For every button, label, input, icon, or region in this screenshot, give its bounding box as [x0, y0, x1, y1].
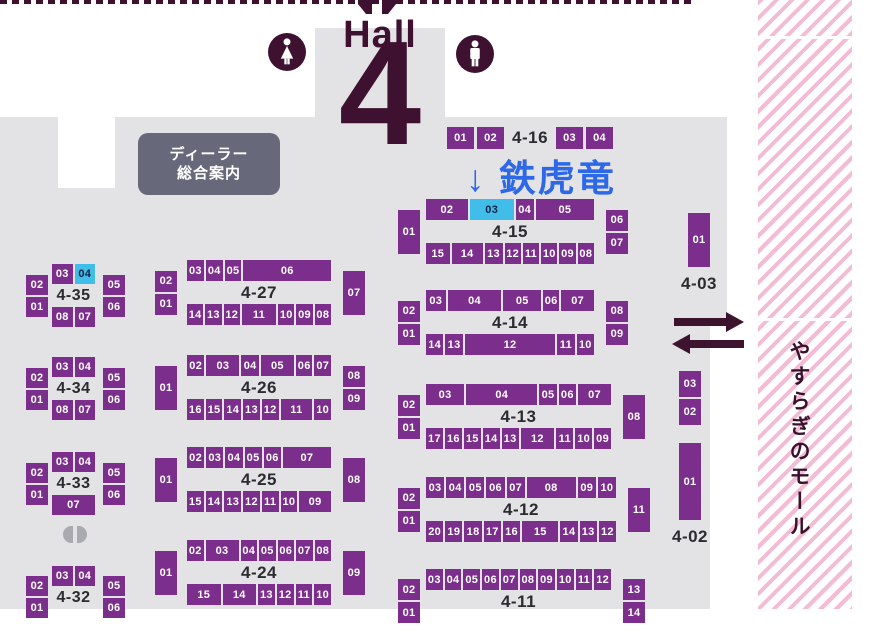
- booth-cell-4-24-11: 11: [296, 584, 313, 605]
- booth-cell-4-27-01: 01: [155, 294, 177, 315]
- booth-cell-4-27-13: 13: [205, 304, 221, 325]
- booth-cell-4-15-15: 15: [426, 243, 450, 264]
- booth-cell-4-12-18: 18: [464, 521, 481, 542]
- hall-number: 4: [315, 24, 445, 164]
- booth-cell-4-12-05: 05: [466, 477, 484, 498]
- booth-cell-4-13-05: 05: [539, 384, 556, 405]
- booth-block-4-26: 010203040506074-26161514131211100809: [155, 355, 365, 420]
- booth-cell-4-11-13: 13: [623, 579, 645, 600]
- booth-cell-4-12-10: 10: [598, 477, 616, 498]
- booth-block-4-34: 020103044-3408070506: [26, 357, 125, 420]
- booth-cell-4-15-02: 02: [426, 199, 468, 220]
- booth-cell-4-14-05: 05: [503, 290, 541, 311]
- booth-cell-4-26-12: 12: [262, 399, 279, 420]
- booth-cell-4-33-07: 07: [52, 495, 95, 515]
- block-label-4-13: 4-13: [426, 407, 611, 426]
- booth-cell-4-27-06: 06: [243, 260, 331, 281]
- booth-cell-4-13-01: 01: [398, 418, 420, 439]
- exhibitor-annotation: ↓ 鉄虎竜: [466, 148, 616, 202]
- booth-cell-4-02-01: 01: [679, 443, 701, 520]
- booth-cell-4-26-10: 10: [314, 399, 331, 420]
- booth-cell-4-14-02: 02: [398, 301, 420, 322]
- arrow-right-head-icon: [726, 312, 744, 332]
- booth-cell-4-27-08: 08: [315, 304, 331, 325]
- booth-cell-4-33-05: 05: [103, 463, 125, 483]
- booth-cell-4-15-05: 05: [536, 199, 594, 220]
- booth-cell-4-35-07: 07: [75, 307, 96, 327]
- booth-block-4-12: 020103040506070809104-122019181716151413…: [398, 477, 650, 542]
- dashed-wall-line: [0, 0, 692, 4]
- booth-block-4-15: 01020304054-1515141312111009080607: [398, 199, 628, 264]
- booth-cell-4-26-05: 05: [261, 355, 294, 376]
- booth-cell-4-25-06: 06: [264, 447, 281, 468]
- booth-cell-4-25-10: 10: [281, 491, 298, 512]
- booth-cell-4-13-09: 09: [594, 428, 611, 449]
- booth-cell-4-27-09: 09: [296, 304, 312, 325]
- booth-cell-4-12-14: 14: [560, 521, 577, 542]
- booth-cell-4-27-10: 10: [278, 304, 294, 325]
- booth-cell-4-32-01: 01: [26, 598, 48, 618]
- booth-cell-4-24-10: 10: [314, 584, 331, 605]
- booth-cell-4-14-06: 06: [543, 290, 559, 311]
- booth-cell-4-13-04: 04: [466, 384, 537, 405]
- booth-cell-4-25-02: 02: [187, 447, 204, 468]
- booth-cell-4-13-15: 15: [464, 428, 481, 449]
- booth-cell-4-16-02: 02: [477, 127, 504, 149]
- booth-cell-4-12-16: 16: [503, 521, 520, 542]
- booth-cell-4-02-02: 02: [679, 399, 701, 425]
- booth-cell-4-12-13: 13: [580, 521, 597, 542]
- booth-cell-4-13-06: 06: [559, 384, 576, 405]
- booth-cell-4-35-03: 03: [52, 264, 73, 284]
- booth-cell-4-14-11: 11: [557, 334, 574, 355]
- booth-cell-4-14-08: 08: [606, 301, 628, 322]
- booth-cell-4-11-01: 01: [398, 602, 420, 623]
- block-label-4-15: 4-15: [426, 222, 594, 241]
- booth-cell-4-34-05: 05: [103, 368, 125, 388]
- booth-cell-4-33-01: 01: [26, 485, 48, 505]
- booth-cell-4-32-02: 02: [26, 576, 48, 596]
- booth-cell-4-26-13: 13: [243, 399, 260, 420]
- booth-cell-4-26-04: 04: [241, 355, 258, 376]
- booth-cell-4-25-13: 13: [224, 491, 241, 512]
- booth-block-4-13: 020103040506074-1317161514131211100908: [398, 384, 645, 449]
- booth-block-4-24: 01020304050607084-2415141312111009: [155, 540, 365, 605]
- booth-cell-4-12-12: 12: [599, 521, 616, 542]
- booth-cell-4-26-15: 15: [206, 399, 223, 420]
- block-label-4-25: 4-25: [187, 470, 331, 489]
- booth-cell-4-26-07: 07: [314, 355, 331, 376]
- booth-cell-4-35-06: 06: [103, 297, 125, 317]
- booth-cell-4-12-08: 08: [527, 477, 576, 498]
- booth-cell-4-35-01: 01: [26, 297, 48, 317]
- stripe-separator-mid: [758, 318, 852, 321]
- booth-cell-4-24-05: 05: [259, 540, 276, 561]
- block-label-4-33: 4-33: [52, 474, 95, 493]
- booth-block-4-02: 0302014-02: [668, 371, 712, 546]
- booth-cell-4-26-03: 03: [206, 355, 239, 376]
- booth-cell-4-24-08: 08: [315, 540, 332, 561]
- booth-block-4-11: 0201030405060708091011124-111314: [398, 569, 645, 633]
- booth-cell-4-25-03: 03: [206, 447, 223, 468]
- mall-name-label: やすらぎのモール: [783, 340, 813, 540]
- booth-cell-4-11-12: 12: [594, 569, 611, 590]
- booth-block-4-32: 020103044-320506: [26, 566, 125, 628]
- booth-cell-4-35-05: 05: [103, 275, 125, 295]
- booth-cell-4-24-07: 07: [296, 540, 313, 561]
- booth-cell-4-13-11: 11: [556, 428, 573, 449]
- booth-cell-4-27-02: 02: [155, 271, 177, 292]
- booth-cell-4-13-13: 13: [502, 428, 519, 449]
- booth-cell-4-25-09: 09: [299, 491, 331, 512]
- booth-cell-4-25-04: 04: [225, 447, 242, 468]
- booth-block-4-03: 014-03: [676, 213, 722, 293]
- booth-cell-4-11-14: 14: [623, 602, 645, 623]
- booth-cell-4-14-07: 07: [561, 290, 594, 311]
- booth-cell-4-24-09: 09: [343, 551, 365, 595]
- booth-cell-4-14-03: 03: [426, 290, 446, 311]
- booth-cell-4-35-08: 08: [52, 307, 73, 327]
- booth-cell-4-14-14: 14: [426, 334, 443, 355]
- booth-cell-4-12-01: 01: [398, 511, 420, 532]
- booth-cell-4-24-02: 02: [187, 540, 204, 561]
- booth-cell-4-27-07: 07: [343, 271, 365, 315]
- block-label-4-35: 4-35: [52, 286, 95, 305]
- booth-cell-4-24-12: 12: [277, 584, 294, 605]
- booth-cell-4-24-14: 14: [223, 584, 257, 605]
- booth-cell-4-15-13: 13: [485, 243, 503, 264]
- booth-cell-4-12-09: 09: [578, 477, 596, 498]
- booth-cell-4-11-10: 10: [557, 569, 574, 590]
- booth-cell-4-26-14: 14: [224, 399, 241, 420]
- block-label-4-32: 4-32: [52, 588, 95, 607]
- booth-cell-4-15-07: 07: [606, 233, 628, 254]
- booth-cell-4-27-12: 12: [224, 304, 240, 325]
- block-label-4-03: 4-03: [681, 274, 717, 293]
- dealer-info-box: ディーラー 総合案内: [138, 133, 280, 195]
- booth-cell-4-24-04: 04: [241, 540, 258, 561]
- booth-cell-4-32-06: 06: [103, 598, 125, 618]
- booth-cell-4-34-07: 07: [75, 400, 96, 420]
- booth-cell-4-14-04: 04: [448, 290, 502, 311]
- booth-cell-4-11-07: 07: [501, 569, 518, 590]
- booth-cell-4-11-02: 02: [398, 579, 420, 600]
- booth-cell-4-11-05: 05: [463, 569, 480, 590]
- booth-cell-4-13-02: 02: [398, 395, 420, 416]
- booth-cell-4-15-01: 01: [398, 210, 420, 254]
- arrow-left-head-icon: [672, 334, 690, 354]
- booth-block-4-25: 010203040506074-251514131211100908: [155, 447, 365, 512]
- booth-cell-4-25-01: 01: [155, 458, 177, 502]
- booth-cell-4-26-08: 08: [343, 366, 365, 387]
- booth-cell-4-14-10: 10: [577, 334, 594, 355]
- block-label-4-14: 4-14: [426, 313, 594, 332]
- booth-cell-4-11-04: 04: [445, 569, 462, 590]
- booth-cell-4-14-12: 12: [465, 334, 555, 355]
- booth-cell-4-15-12: 12: [505, 243, 521, 264]
- block-label-4-16: 4-16: [507, 127, 553, 149]
- booth-cell-4-26-11: 11: [281, 399, 313, 420]
- arrow-left-icon: [690, 340, 744, 348]
- booth-cell-4-34-01: 01: [26, 390, 48, 410]
- booth-cell-4-13-10: 10: [575, 428, 592, 449]
- booth-cell-4-12-17: 17: [484, 521, 501, 542]
- entrance-notch: [58, 117, 115, 188]
- booth-cell-4-25-15: 15: [187, 491, 204, 512]
- booth-cell-4-02-03: 03: [679, 371, 701, 397]
- booth-cell-4-12-20: 20: [426, 521, 443, 542]
- booth-cell-4-33-06: 06: [103, 485, 125, 505]
- booth-cell-4-13-07: 07: [578, 384, 611, 405]
- male-restroom-icon: [456, 35, 494, 73]
- booth-cell-4-24-13: 13: [258, 584, 275, 605]
- booth-cell-4-35-04: 04: [75, 264, 96, 284]
- stripe-separator-top: [758, 36, 852, 39]
- booth-cell-4-25-11: 11: [262, 491, 279, 512]
- booth-cell-4-32-04: 04: [75, 566, 96, 586]
- booth-cell-4-15-08: 08: [578, 243, 594, 264]
- booth-cell-4-12-07: 07: [507, 477, 525, 498]
- booth-cell-4-34-06: 06: [103, 390, 125, 410]
- booth-block-4-16: 01024-160304: [447, 127, 613, 149]
- booth-cell-4-34-03: 03: [52, 357, 73, 377]
- booth-cell-4-12-06: 06: [486, 477, 504, 498]
- block-label-4-27: 4-27: [187, 283, 331, 302]
- booth-cell-4-33-04: 04: [75, 452, 96, 472]
- booth-cell-4-24-01: 01: [155, 551, 177, 595]
- dealer-info-line1: ディーラー: [170, 145, 249, 165]
- booth-cell-4-15-04: 04: [516, 199, 534, 220]
- booth-cell-4-15-11: 11: [523, 243, 539, 264]
- booth-cell-4-32-05: 05: [103, 576, 125, 596]
- booth-cell-4-25-07: 07: [283, 447, 331, 468]
- booth-block-4-14: 020103040506074-1414131211100809: [398, 290, 628, 355]
- booth-cell-4-11-06: 06: [482, 569, 499, 590]
- booth-cell-4-16-01: 01: [447, 127, 474, 149]
- booth-cell-4-26-01: 01: [155, 366, 177, 410]
- booth-cell-4-15-03: 03: [470, 199, 514, 220]
- booth-cell-4-14-09: 09: [606, 324, 628, 345]
- booth-cell-4-27-11: 11: [242, 304, 276, 325]
- booth-cell-4-13-16: 16: [445, 428, 462, 449]
- booth-cell-4-12-19: 19: [445, 521, 462, 542]
- booth-cell-4-15-06: 06: [606, 210, 628, 231]
- booth-cell-4-12-04: 04: [446, 477, 464, 498]
- pillar-icon: [63, 526, 87, 543]
- booth-cell-4-24-15: 15: [187, 584, 221, 605]
- block-label-4-26: 4-26: [187, 378, 331, 397]
- dealer-info-line2: 総合案内: [177, 164, 241, 184]
- booth-block-4-33: 020103044-33070506: [26, 452, 125, 515]
- booth-cell-4-34-08: 08: [52, 400, 73, 420]
- booth-cell-4-35-02: 02: [26, 275, 48, 295]
- booth-cell-4-27-14: 14: [187, 304, 203, 325]
- booth-cell-4-27-04: 04: [206, 260, 223, 281]
- booth-cell-4-12-11: 11: [628, 488, 650, 532]
- booth-cell-4-24-06: 06: [278, 540, 295, 561]
- booth-cell-4-27-03: 03: [187, 260, 204, 281]
- booth-cell-4-13-08: 08: [623, 395, 645, 439]
- booth-cell-4-11-11: 11: [576, 569, 593, 590]
- booth-cell-4-24-03: 03: [206, 540, 239, 561]
- booth-cell-4-12-15: 15: [522, 521, 558, 542]
- block-label-4-02: 4-02: [672, 527, 708, 546]
- booth-cell-4-13-14: 14: [483, 428, 500, 449]
- booth-block-4-27: 0201030405064-271413121110090807: [155, 260, 365, 325]
- booth-cell-4-15-10: 10: [541, 243, 557, 264]
- booth-cell-4-11-03: 03: [426, 569, 443, 590]
- booth-cell-4-11-09: 09: [538, 569, 555, 590]
- booth-cell-4-15-09: 09: [559, 243, 575, 264]
- female-restroom-icon: [268, 33, 306, 71]
- booth-cell-4-26-09: 09: [343, 389, 365, 410]
- block-label-4-12: 4-12: [426, 500, 616, 519]
- booth-cell-4-33-03: 03: [52, 452, 73, 472]
- booth-block-4-35: 020103044-3508070506: [26, 264, 125, 327]
- booth-cell-4-25-08: 08: [343, 458, 365, 502]
- booth-cell-4-27-05: 05: [225, 260, 242, 281]
- booth-cell-4-25-14: 14: [206, 491, 223, 512]
- block-label-4-11: 4-11: [426, 592, 611, 611]
- arrow-right-icon: [674, 318, 726, 326]
- booth-cell-4-26-16: 16: [187, 399, 204, 420]
- booth-cell-4-34-02: 02: [26, 368, 48, 388]
- block-label-4-24: 4-24: [187, 563, 331, 582]
- booth-cell-4-25-12: 12: [243, 491, 260, 512]
- booth-cell-4-13-17: 17: [426, 428, 443, 449]
- booth-cell-4-14-13: 13: [445, 334, 462, 355]
- booth-cell-4-11-08: 08: [520, 569, 537, 590]
- booth-cell-4-33-02: 02: [26, 463, 48, 483]
- booth-cell-4-13-03: 03: [426, 384, 464, 405]
- booth-cell-4-32-03: 03: [52, 566, 73, 586]
- block-label-4-34: 4-34: [52, 379, 95, 398]
- booth-cell-4-12-03: 03: [426, 477, 444, 498]
- booth-cell-4-14-01: 01: [398, 324, 420, 345]
- booth-cell-4-25-05: 05: [245, 447, 262, 468]
- booth-cell-4-16-03: 03: [556, 127, 583, 149]
- booth-cell-4-26-02: 02: [187, 355, 204, 376]
- booth-cell-4-26-06: 06: [296, 355, 313, 376]
- booth-cell-4-15-14: 14: [452, 243, 483, 264]
- booth-cell-4-03-01: 01: [688, 213, 710, 267]
- booth-cell-4-34-04: 04: [75, 357, 96, 377]
- booth-cell-4-13-12: 12: [521, 428, 555, 449]
- booth-cell-4-16-04: 04: [586, 127, 613, 149]
- booth-cell-4-12-02: 02: [398, 488, 420, 509]
